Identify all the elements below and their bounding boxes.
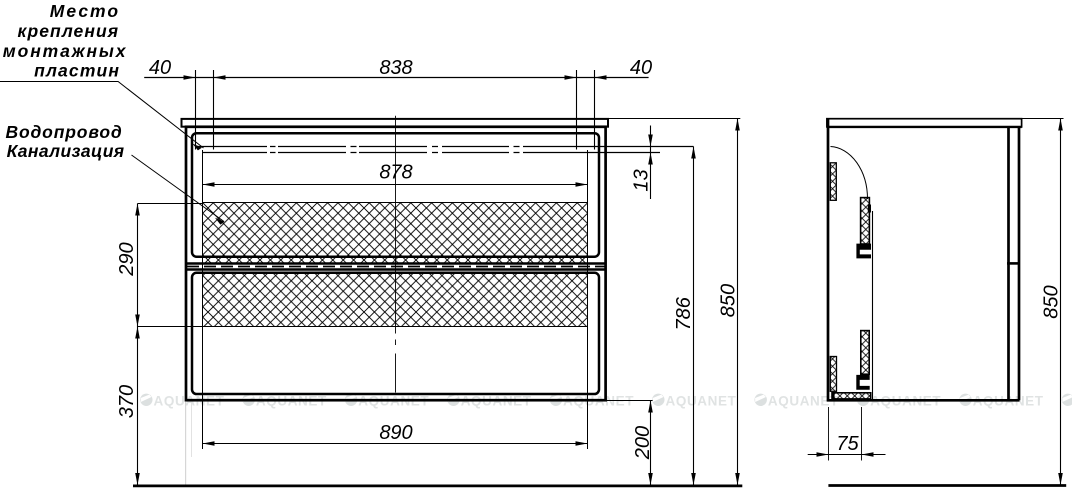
svg-text:786: 786 (673, 296, 695, 330)
svg-text:290: 290 (116, 242, 138, 276)
svg-text:13: 13 (631, 169, 653, 191)
svg-text:Место: Место (50, 1, 119, 21)
svg-text:крепления: крепления (18, 21, 119, 41)
svg-text:Канализация: Канализация (7, 141, 125, 161)
svg-text:838: 838 (379, 57, 412, 79)
svg-text:монтажных: монтажных (3, 41, 127, 61)
svg-text:890: 890 (379, 422, 412, 444)
svg-text:878: 878 (379, 162, 412, 184)
svg-text:Водопровод: Водопровод (6, 122, 122, 142)
svg-text:AQUANET: AQUANET (666, 394, 737, 409)
svg-text:200: 200 (632, 426, 654, 460)
svg-text:75: 75 (836, 433, 859, 455)
svg-text:370: 370 (116, 385, 138, 418)
svg-text:40: 40 (149, 57, 171, 79)
svg-text:пластин: пластин (34, 61, 119, 81)
svg-text:40: 40 (630, 57, 652, 79)
svg-text:850: 850 (718, 284, 740, 317)
svg-text:850: 850 (1041, 285, 1063, 318)
